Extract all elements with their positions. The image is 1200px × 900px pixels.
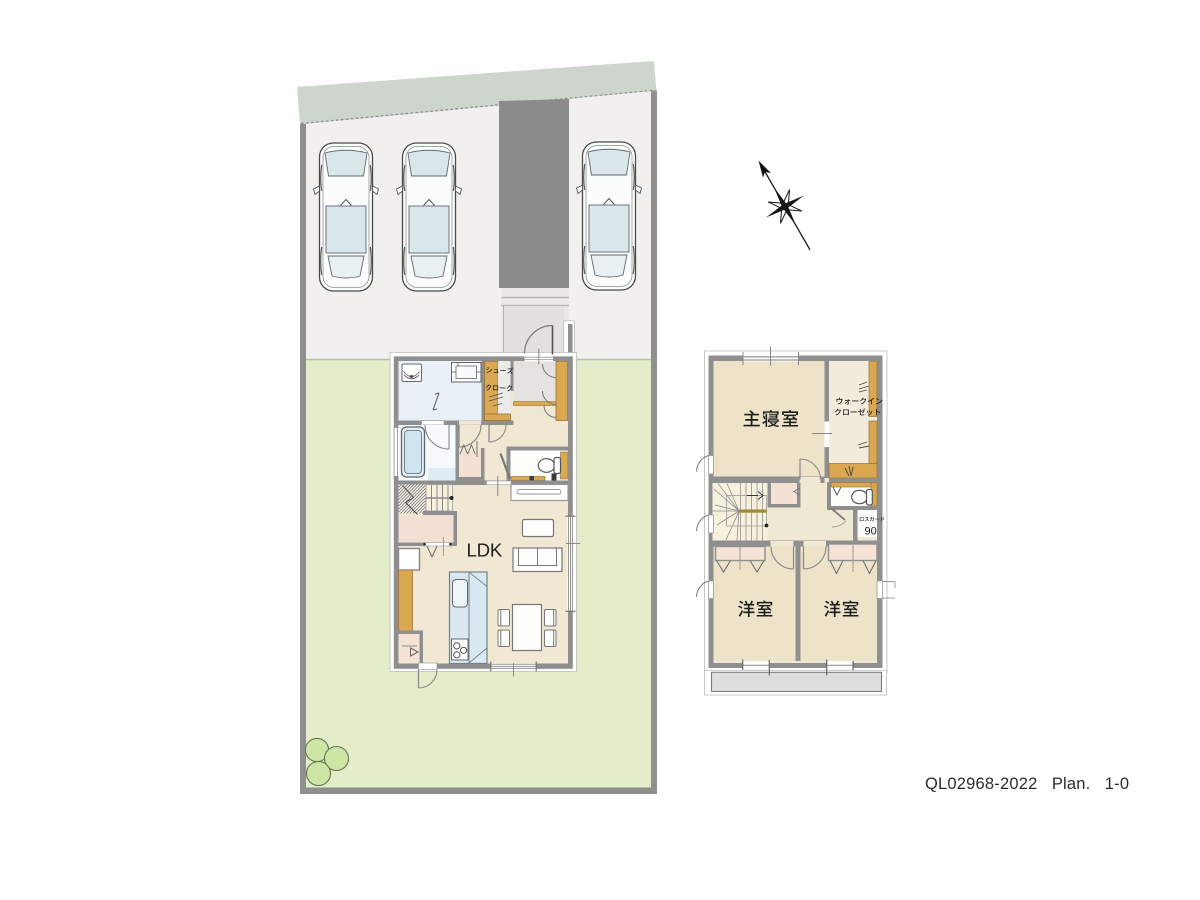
svg-text:LDK: LDK xyxy=(467,540,503,561)
svg-text:QL02968-2022 Plan. 1-0: QL02968-2022 Plan. 1-0 xyxy=(925,775,1129,793)
svg-text:90: 90 xyxy=(865,526,877,538)
